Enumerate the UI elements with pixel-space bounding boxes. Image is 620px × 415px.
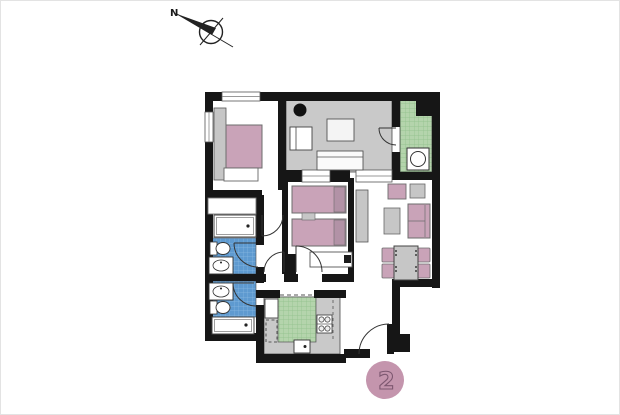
wall-laundry-west bbox=[392, 100, 400, 127]
closet bbox=[208, 198, 256, 214]
wall-laundry-south bbox=[392, 172, 440, 180]
unit-badge[interactable]: 2 bbox=[366, 361, 404, 399]
door-bedroom1 bbox=[262, 215, 283, 236]
coffee-table bbox=[384, 208, 400, 234]
wall-bedroom2-left bbox=[282, 182, 288, 274]
plant-icon bbox=[294, 104, 307, 117]
bedroom2-bench bbox=[310, 252, 352, 267]
compass-rose-icon: N bbox=[170, 8, 233, 47]
door-hall-left bbox=[264, 252, 284, 272]
fridge-icon bbox=[265, 299, 278, 318]
window-living-terrace bbox=[356, 170, 392, 182]
living-dining-room bbox=[356, 184, 430, 280]
wall-bedroom1-right bbox=[278, 92, 286, 190]
wall-kitchen-top-right bbox=[314, 290, 346, 298]
floor-plan-drawing: N bbox=[0, 0, 620, 415]
dining-chair bbox=[382, 264, 394, 278]
bathtub-1 bbox=[214, 215, 256, 237]
kitchen-floor bbox=[278, 297, 316, 342]
washing-machine-icon bbox=[407, 148, 429, 170]
terrace-sofa bbox=[317, 151, 363, 170]
window-bedroom1-top bbox=[222, 92, 260, 101]
bedroom2 bbox=[292, 186, 352, 267]
dining-set bbox=[382, 246, 430, 280]
bedroom1-double-bed bbox=[226, 125, 262, 168]
bedroom2-bed-2 bbox=[292, 219, 346, 246]
entrance-door-leaf bbox=[387, 324, 394, 354]
sofa bbox=[408, 204, 430, 238]
unit-badge-label: 2 bbox=[378, 367, 395, 395]
living-cabinet bbox=[356, 190, 368, 242]
toilet-2-icon bbox=[210, 301, 230, 314]
side-table bbox=[410, 184, 425, 198]
bedroom1-dresser bbox=[224, 168, 258, 181]
wall-bedroom1-south bbox=[205, 190, 262, 198]
bedroom1 bbox=[214, 108, 262, 181]
floor-plan-page: N bbox=[0, 0, 620, 415]
window-bedroom2-terrace bbox=[302, 170, 330, 182]
wall-kitchen-bottom bbox=[256, 354, 346, 363]
wall-closet-east bbox=[256, 195, 264, 237]
dining-chair bbox=[382, 248, 394, 262]
kitchen-sink-icon bbox=[294, 340, 310, 353]
wall-kitchen-top-left bbox=[256, 290, 280, 298]
dining-chair bbox=[418, 248, 430, 262]
wall-right bbox=[432, 92, 440, 288]
terrace-shelf bbox=[290, 127, 312, 150]
wall-bathroom-divider bbox=[205, 274, 256, 281]
wall-entry-corner bbox=[394, 334, 410, 352]
stove-icon bbox=[317, 315, 332, 333]
terrace-table bbox=[327, 119, 354, 141]
sink-1-icon bbox=[209, 257, 233, 274]
wall-bottom-right bbox=[344, 349, 370, 358]
bedroom2-nightstand bbox=[302, 213, 315, 220]
armchair bbox=[388, 184, 406, 199]
door-bedroom2 bbox=[296, 246, 322, 272]
structural-column bbox=[416, 92, 432, 116]
wall-hall-post bbox=[284, 274, 298, 282]
toilet-1-icon bbox=[210, 242, 230, 255]
window-bedroom1-left bbox=[205, 112, 213, 142]
bedroom2-bed-1 bbox=[292, 186, 346, 213]
dining-table bbox=[394, 246, 418, 280]
laundry bbox=[407, 148, 429, 170]
bathtub-2 bbox=[212, 317, 254, 334]
dining-chair bbox=[418, 264, 430, 278]
sink-2-icon bbox=[209, 283, 233, 300]
compass-north-label: N bbox=[170, 8, 178, 19]
